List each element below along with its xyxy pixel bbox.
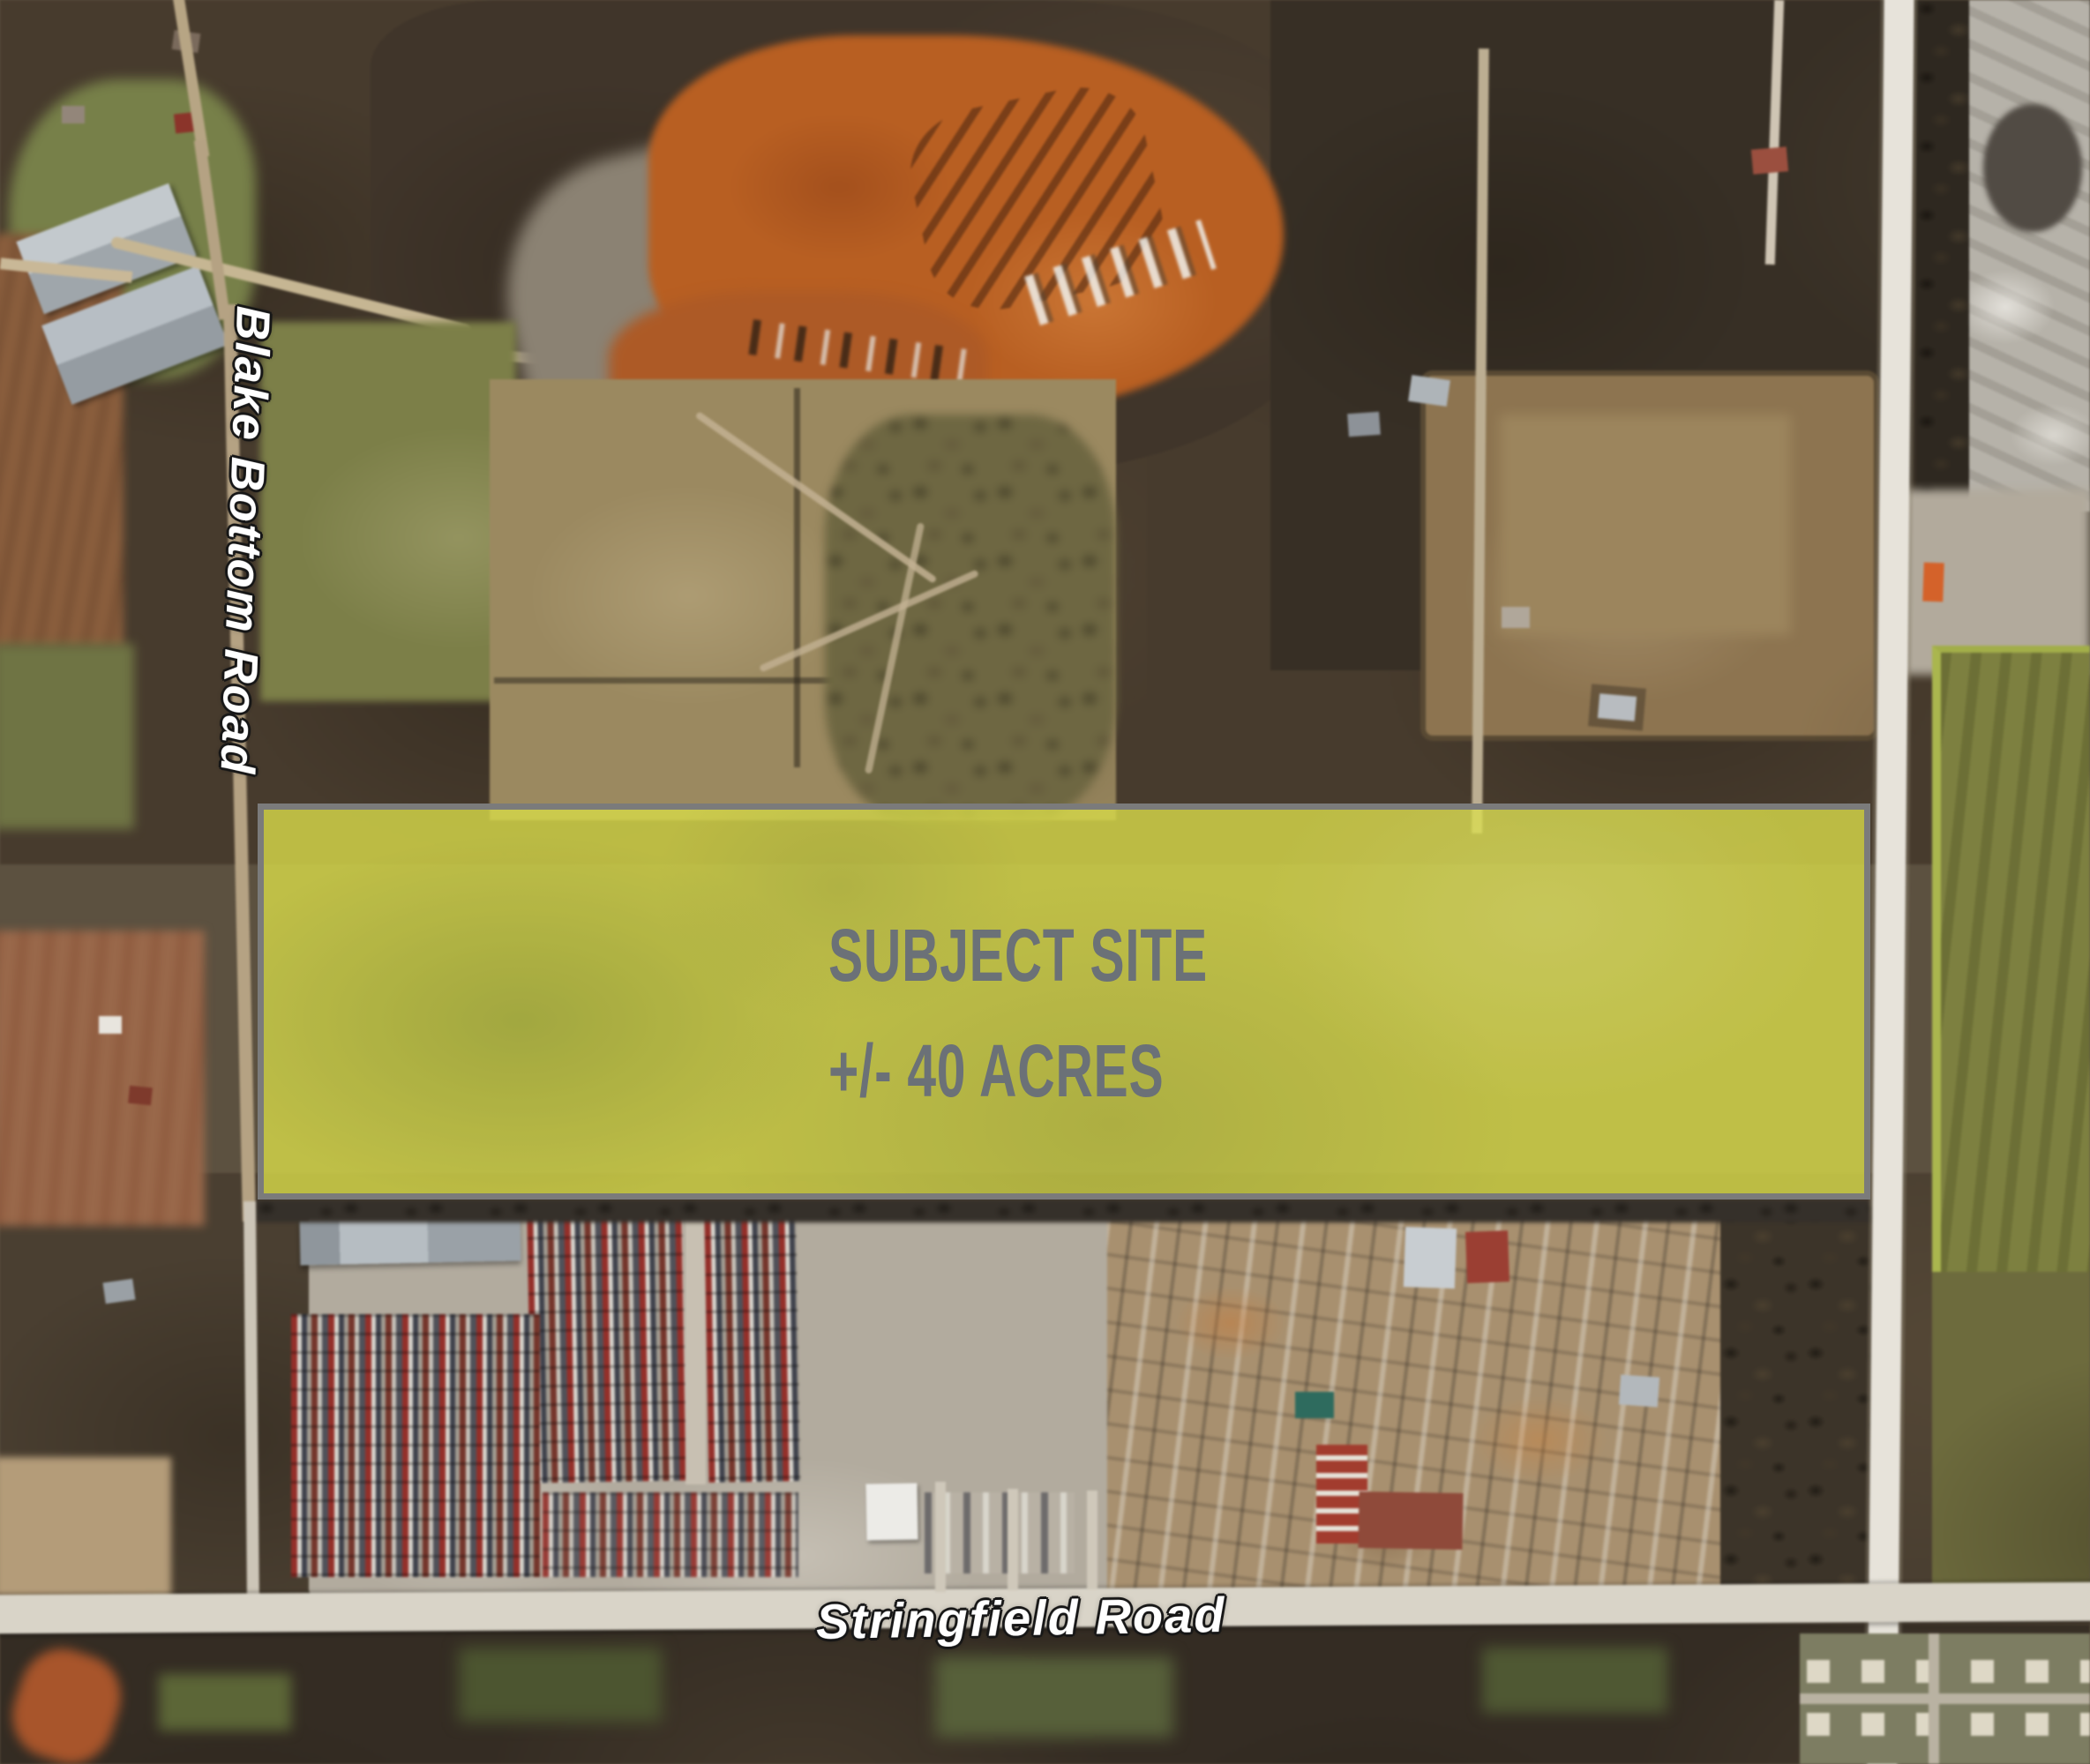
junkyard-cars-block-right (704, 1216, 800, 1483)
junkyard-cars-block-lower (291, 1314, 540, 1577)
woods-patch-southeast (1720, 1207, 1879, 1595)
parking-cars-sparse (925, 1492, 1075, 1573)
clutter-building-red (1465, 1230, 1509, 1283)
orange-truck (1922, 563, 1944, 602)
house-midright-3 (1502, 607, 1530, 628)
green-patch-bottom-4 (1482, 1648, 1667, 1713)
subdivision-street-v (1929, 1633, 1939, 1764)
house-leftedge-1 (99, 1016, 122, 1034)
quarry-gray-topright (1969, 0, 2090, 512)
house-farm-right (1598, 693, 1637, 721)
site-acreage: +/- 40 ACRES (828, 1013, 1208, 1129)
field-green-leftedge (0, 644, 134, 829)
house-leftedge-2 (128, 1086, 153, 1106)
field-tan-bottomleft (0, 1457, 171, 1598)
hedgerow-vertical-center (794, 388, 800, 767)
driveway-stringfield-1 (935, 1482, 946, 1592)
green-patch-bottom-1 (159, 1674, 291, 1730)
field-right-bottom (1932, 1272, 2090, 1589)
subject-site-overlay: SUBJECT SITE +/- 40 ACRES (258, 804, 1870, 1200)
driveway-stringfield-3 (1087, 1491, 1097, 1589)
green-patch-bottom-3 (935, 1656, 1173, 1738)
road-label-stringfield-road: Stringfield Road (815, 1586, 1226, 1650)
house-left-low (102, 1279, 135, 1304)
junkyard-cars-block-left (527, 1215, 686, 1483)
treeband-below-site (256, 1200, 1870, 1222)
aerial-map: SUBJECT SITE +/- 40 ACRES Blake Bottom R… (0, 0, 2090, 1764)
warehouse-building (300, 1216, 521, 1265)
clutter-building-white (1404, 1227, 1457, 1289)
white-building-junkyard (865, 1483, 918, 1540)
house-northeast (1751, 146, 1788, 174)
driveway-stringfield-2 (1008, 1489, 1018, 1590)
house-topleft-3 (62, 106, 85, 123)
subdivision-house-row-1 (1807, 1660, 2090, 1683)
house-midright-2 (1347, 412, 1381, 437)
clutter-shed-gray (1619, 1375, 1659, 1408)
field-brown-inner-light (1500, 415, 1791, 635)
field-red-leftedge (0, 931, 205, 1226)
junkyard-lane (685, 1215, 706, 1484)
clutter-building-teal (1295, 1392, 1334, 1418)
subdivision-house-row-2 (1807, 1713, 2090, 1736)
subdivision-street-h (1800, 1693, 2090, 1704)
house-midright-1 (1408, 375, 1450, 407)
junkyard-cars-strip-south (543, 1492, 798, 1577)
subject-site-text: SUBJECT SITE +/- 40 ACRES (828, 898, 1208, 1129)
field-green-midleft (260, 322, 516, 701)
green-patch-bottom-2 (459, 1648, 662, 1722)
field-green-right (1932, 646, 2090, 1272)
quarry-gray-pile (1983, 104, 2082, 232)
site-title: SUBJECT SITE (828, 898, 1208, 1013)
clutter-building-south (1358, 1491, 1463, 1550)
